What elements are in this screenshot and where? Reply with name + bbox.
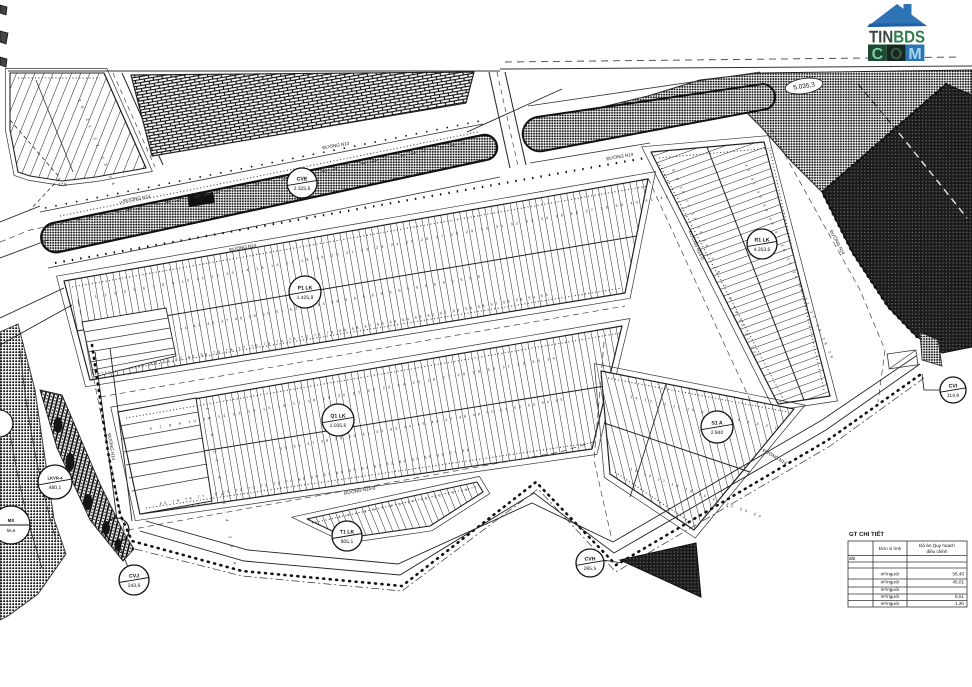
svg-text:Q1 LK: Q1 LK [330, 414, 346, 420]
svg-text:6,51: 6,51 [955, 594, 964, 599]
svg-text:Đơn vị tính: Đơn vị tính [879, 546, 902, 551]
svg-text:CVI: CVI [949, 384, 958, 390]
svg-text:C: C [872, 46, 884, 63]
svg-text:m²/người: m²/người [881, 594, 900, 599]
svg-text:56,40: 56,40 [953, 572, 965, 577]
svg-text:R1 LK: R1 LK [755, 238, 770, 244]
svg-text:TINBDS: TINBDS [869, 28, 925, 47]
svg-text:đất: đất [849, 556, 856, 561]
svg-text:m²/người: m²/người [881, 572, 900, 577]
svg-text:1.035,6: 1.035,6 [330, 423, 347, 429]
svg-text:LKVR-4: LKVR-4 [47, 476, 63, 481]
svg-text:T1 LK: T1 LK [340, 530, 355, 536]
svg-text:m²/người: m²/người [881, 587, 900, 592]
svg-text:M: M [908, 46, 921, 63]
svg-text:điều chỉnh: điều chỉnh [927, 549, 948, 554]
svg-text:CVH: CVH [585, 557, 596, 563]
svg-text:4.253,6: 4.253,6 [754, 247, 771, 253]
svg-text:265,5: 265,5 [584, 566, 597, 572]
svg-text:CVE: CVE [297, 177, 308, 183]
svg-text:Đồ án Quy hoạch: Đồ án Quy hoạch [919, 543, 955, 548]
svg-text:1,30: 1,30 [955, 601, 964, 606]
svg-text:GT CHI TIẾT: GT CHI TIẾT [849, 530, 884, 538]
svg-text:243,6: 243,6 [128, 583, 141, 589]
svg-text:m²/người: m²/người [881, 601, 900, 606]
svg-text:480,1: 480,1 [49, 485, 62, 491]
svg-text:2.325,8: 2.325,8 [294, 186, 311, 192]
svg-text:O: O [890, 46, 902, 63]
svg-text:805,1: 805,1 [341, 539, 354, 545]
svg-text:2.840: 2.840 [711, 430, 724, 436]
svg-text:S1 A: S1 A [711, 421, 723, 427]
svg-text:17,5: 17,5 [58, 182, 67, 187]
svg-text:114,9: 114,9 [947, 393, 959, 399]
svg-text:P1 LK: P1 LK [298, 286, 313, 292]
svg-text:CVJ: CVJ [129, 574, 139, 580]
svg-text:45,01: 45,01 [953, 580, 965, 585]
svg-text:56,6: 56,6 [7, 528, 16, 533]
svg-text:1.425,8: 1.425,8 [297, 295, 314, 301]
svg-text:MX: MX [8, 518, 15, 523]
svg-text:m²/người: m²/người [881, 580, 900, 585]
